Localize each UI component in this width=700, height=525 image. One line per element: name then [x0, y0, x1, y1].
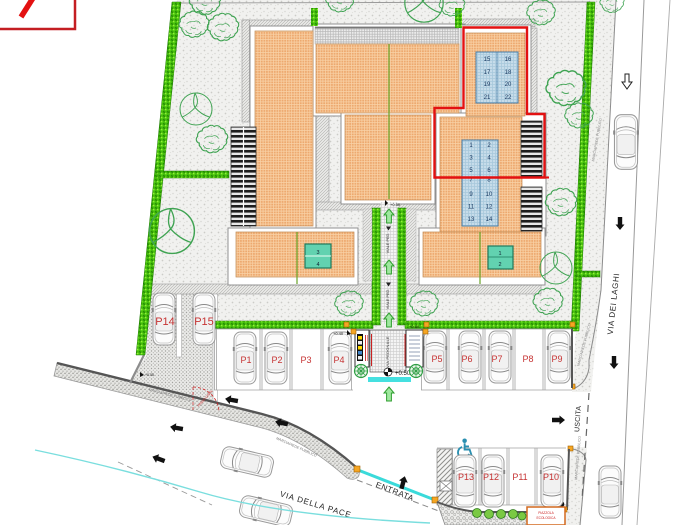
svg-text:2: 2: [498, 262, 501, 268]
svg-text:P4: P4: [333, 355, 344, 365]
svg-text:P9: P9: [551, 354, 562, 364]
svg-text:+0.40: +0.40: [333, 331, 344, 336]
svg-text:21: 21: [484, 95, 491, 101]
svg-text:13: 13: [468, 217, 475, 223]
svg-text:3: 3: [316, 250, 319, 256]
svg-text:PIAZZOLA: PIAZZOLA: [538, 511, 554, 515]
svg-text:P8: P8: [522, 354, 533, 364]
svg-text:19: 19: [484, 82, 491, 88]
svg-text:20: 20: [505, 82, 512, 88]
svg-text:P6: P6: [461, 354, 472, 364]
svg-text:18: 18: [505, 70, 512, 76]
svg-text:+0.50: +0.50: [395, 371, 411, 377]
svg-text:17: 17: [484, 70, 491, 76]
svg-text:VIA PEDONALE: VIA PEDONALE: [385, 336, 390, 368]
svg-text:VIALE PED.: VIALE PED.: [386, 233, 390, 254]
svg-text:P5: P5: [431, 354, 442, 364]
svg-text:P1: P1: [240, 355, 251, 365]
svg-text:22: 22: [505, 95, 512, 101]
svg-text:ECOLOGICA: ECOLOGICA: [537, 516, 557, 520]
svg-text:VIALE PED.: VIALE PED.: [386, 289, 390, 310]
svg-text:+0.05: +0.05: [145, 373, 154, 377]
svg-text:P13: P13: [458, 472, 474, 482]
svg-text:P14: P14: [155, 316, 175, 328]
svg-text:15: 15: [484, 57, 491, 63]
svg-text:12: 12: [486, 205, 493, 211]
svg-text:+0.40: +0.40: [409, 324, 420, 329]
svg-text:+0.50: +0.50: [390, 202, 401, 207]
svg-text:10: 10: [486, 192, 493, 198]
svg-text:P2: P2: [271, 355, 282, 365]
svg-text:P7: P7: [491, 354, 502, 364]
svg-text:P15: P15: [194, 316, 214, 328]
svg-text:P3: P3: [300, 355, 311, 365]
svg-text:1: 1: [498, 251, 501, 257]
svg-text:P12: P12: [483, 472, 499, 482]
svg-text:P10: P10: [543, 472, 559, 482]
svg-text:14: 14: [486, 217, 493, 223]
svg-text:4: 4: [316, 262, 319, 268]
svg-text:P11: P11: [512, 472, 527, 482]
svg-text:11: 11: [468, 205, 475, 211]
svg-text:16: 16: [505, 57, 512, 63]
